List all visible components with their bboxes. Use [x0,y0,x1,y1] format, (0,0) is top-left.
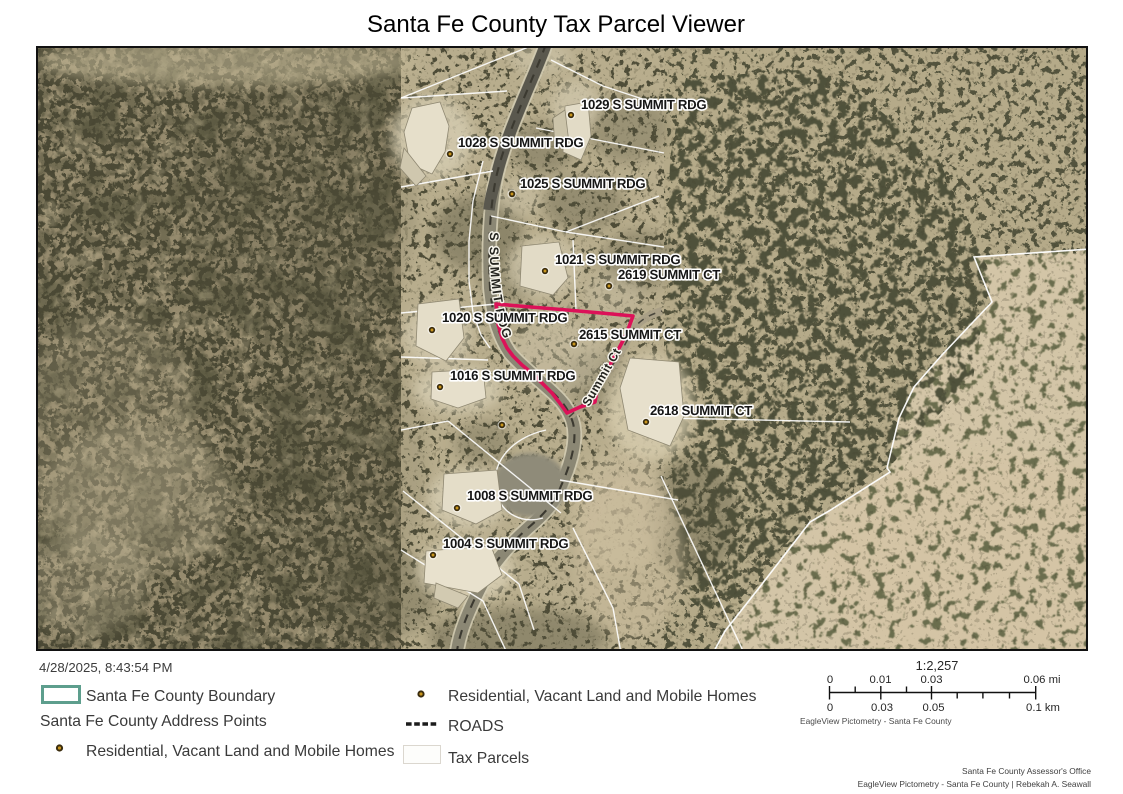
svg-text:1:2,257: 1:2,257 [916,658,959,673]
svg-text:1008 S SUMMIT RDG: 1008 S SUMMIT RDG [467,488,592,503]
svg-text:2618 SUMMIT CT: 2618 SUMMIT CT [650,403,752,418]
svg-text:1029 S SUMMIT RDG: 1029 S SUMMIT RDG [581,97,706,112]
svg-text:1028 S SUMMIT RDG: 1028 S SUMMIT RDG [458,135,583,150]
svg-text:0.01: 0.01 [870,674,892,686]
svg-text:1021 S SUMMIT RDG: 1021 S SUMMIT RDG [555,252,680,267]
svg-text:0: 0 [827,674,833,686]
svg-text:0.05: 0.05 [923,702,945,714]
svg-text:1020 S SUMMIT RDG: 1020 S SUMMIT RDG [442,310,567,325]
svg-text:0.03: 0.03 [871,702,893,714]
svg-text:0.06 mi: 0.06 mi [1023,674,1060,686]
svg-text:0.1 km: 0.1 km [1026,702,1060,714]
svg-text:2615 SUMMIT CT: 2615 SUMMIT CT [579,327,681,342]
svg-text:1025 S SUMMIT RDG: 1025 S SUMMIT RDG [520,176,645,191]
svg-text:0: 0 [827,702,833,714]
svg-text:0.03: 0.03 [921,674,943,686]
svg-text:2619 SUMMIT CT: 2619 SUMMIT CT [618,267,720,282]
svg-text:1004 S SUMMIT RDG: 1004 S SUMMIT RDG [443,536,568,551]
svg-text:1016 S SUMMIT RDG: 1016 S SUMMIT RDG [450,368,575,383]
